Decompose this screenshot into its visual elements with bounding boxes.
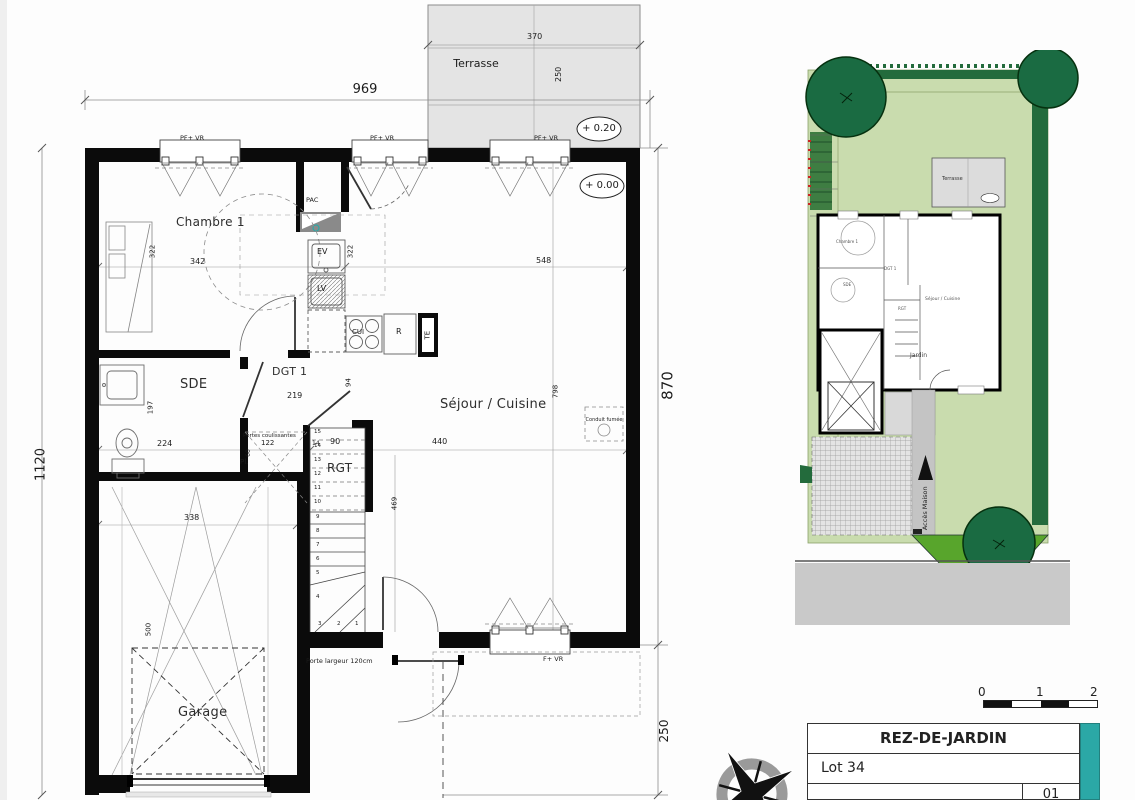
stair-step: 1 (355, 622, 359, 628)
scale-tick-0: 0 (978, 685, 986, 699)
site-acces-maison-label: Accès Maison (922, 479, 929, 537)
stair-step: 9 (316, 515, 320, 521)
dim-500: 500 (146, 617, 153, 643)
equip-pac: PAC (306, 197, 318, 204)
dim-548: 548 (536, 257, 551, 265)
mini-room-dgt: DGT 1 (884, 267, 896, 271)
floor-name: REZ-DE-JARDIN (808, 724, 1079, 754)
dim-250-terrasse: 250 (555, 62, 563, 82)
stair-step: 10 (314, 500, 321, 506)
dim-322-sejour: 322 (348, 239, 355, 265)
scale-tick-2: 2 (1090, 685, 1098, 699)
dim-338: 338 (184, 514, 199, 522)
dim-798: 798 (553, 379, 560, 405)
stair-step: 6 (316, 557, 320, 563)
stair-step: 12 (314, 472, 321, 478)
road (795, 563, 1070, 625)
stair-step: 14 (314, 444, 321, 450)
equip-conduit-fumee: Conduit fumée (584, 418, 624, 423)
window-label-pf-vr-3: PF+ VR (534, 135, 558, 142)
bed (106, 222, 152, 332)
kitchen-fixtures (308, 240, 416, 354)
scale-segment (1069, 701, 1097, 707)
stair-step: 4 (316, 595, 320, 601)
room-label-chambre1: Chambre 1 (176, 216, 245, 228)
dim-969: 969 (335, 83, 395, 96)
window-label-pf-vr-2: PF+ VR (370, 135, 394, 142)
dim-219: 219 (287, 392, 302, 400)
title-block: REZ-DE-JARDIN Lot 34 01 (807, 723, 1080, 800)
dim-94: 94 (346, 372, 353, 394)
equip-ev: EV (317, 248, 328, 256)
sliding-doors (245, 432, 307, 503)
room-label-dgt1: DGT 1 (272, 366, 307, 377)
site-jardin-label: Jardin (910, 353, 927, 359)
equip-cui: CUI (352, 329, 364, 336)
dim-870: 870 (661, 366, 676, 406)
dim-1120: 1120 (35, 442, 48, 488)
dim-322-chambre: 322 (150, 239, 157, 265)
mini-room-sde: SDE (843, 283, 851, 287)
dim-469: 469 (392, 491, 399, 517)
interior-dimension-lines (94, 162, 631, 632)
lot-number: Lot 34 (808, 754, 1079, 784)
walls (85, 148, 640, 795)
mini-room-sejour: Séjour / Cuisine (925, 298, 960, 303)
scale-segment (984, 701, 1012, 707)
mini-room-rgt: RGT (898, 307, 906, 311)
equip-porte-largeur: Porte largeur 120cm (306, 658, 373, 665)
teal-accent-bar (1080, 723, 1100, 800)
scale-segment (1012, 701, 1040, 707)
equip-te: TE (425, 326, 432, 340)
flue-duct (585, 407, 623, 441)
room-label-rgt: RGT (327, 462, 352, 474)
dim-342: 342 (190, 258, 205, 266)
equip-r: R (396, 328, 402, 336)
stair-step: 7 (316, 543, 320, 549)
mini-room-chambre: Chambre 1 (836, 240, 858, 244)
mini-garage (820, 330, 882, 433)
room-label-garage: Garage (178, 706, 227, 719)
equip-lv: LV (317, 285, 326, 293)
stair-step: 15 (314, 430, 321, 436)
architectural-sheet: Terrasse 370 250 + 0.20 + 0.00 PF+ VR PF… (0, 0, 1135, 800)
dim-250-right: 250 (658, 713, 670, 749)
garage-markings (112, 487, 268, 775)
scale-tick-1: 1 (1036, 685, 1044, 699)
site-terrasse-label: Terrasse (942, 177, 963, 182)
boundary-dashes (433, 652, 640, 798)
compass-rose (702, 742, 802, 800)
floorplan-drawing (0, 0, 700, 800)
title-block-row3: 01 (808, 784, 1079, 800)
window-label-pf-vr-1: PF+ VR (180, 135, 204, 142)
room-label-sde: SDE (180, 378, 207, 391)
dim-197: 197 (148, 395, 155, 421)
stair-step: 3 (318, 622, 322, 628)
mini-terrasse (932, 158, 1005, 207)
stair-step: 8 (316, 529, 320, 535)
dim-90: 90 (330, 438, 340, 446)
stair-step: 13 (314, 458, 321, 464)
stair-step: 11 (314, 486, 321, 492)
garage-door (126, 775, 271, 797)
scale-segment (1041, 701, 1069, 707)
window-label-f-vr: F+ VR (543, 656, 563, 663)
dim-224: 224 (157, 440, 172, 448)
tree-icon (1018, 50, 1078, 108)
terrasse-label: Terrasse (446, 58, 506, 69)
siteplan-drawing (790, 50, 1080, 635)
scale-bar (983, 700, 1098, 708)
sheet-number: 01 (1022, 784, 1079, 800)
dim-122: 122 (261, 440, 274, 447)
dim-440: 440 (432, 438, 447, 446)
dim-60: 60 (246, 445, 252, 461)
level-plus-000: + 0.00 (580, 181, 624, 191)
room-label-sejour-cuisine: Séjour / Cuisine (440, 398, 546, 411)
level-plus-020: + 0.20 (577, 124, 621, 134)
stair-step: 5 (316, 571, 320, 577)
bathroom-fixtures (100, 365, 144, 478)
stair-step: 2 (337, 622, 341, 628)
dim-370: 370 (527, 33, 542, 41)
